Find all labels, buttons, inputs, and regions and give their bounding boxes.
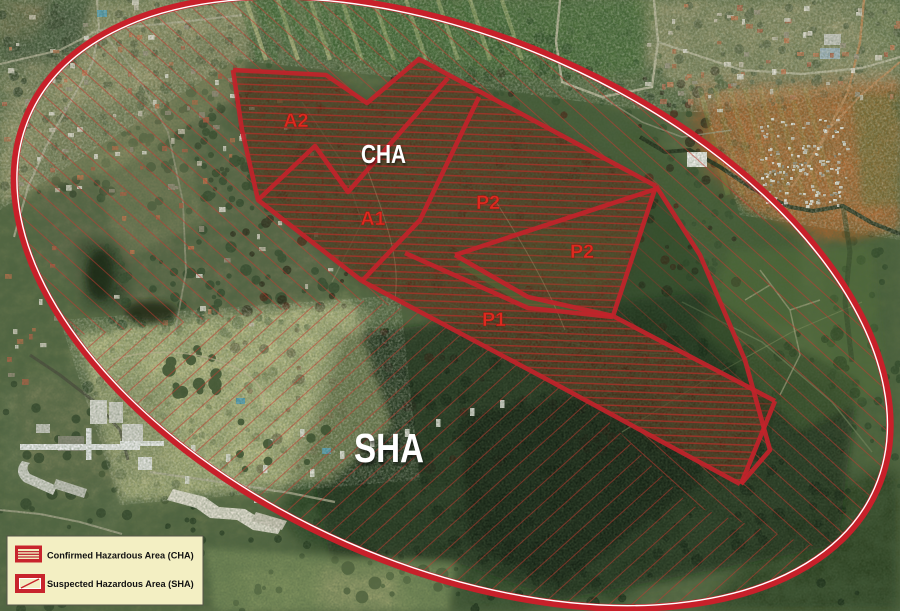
svg-text:CHA: CHA — [361, 139, 406, 169]
svg-text:A2: A2 — [284, 110, 309, 132]
svg-text:P2: P2 — [476, 192, 500, 214]
svg-text:SHA: SHA — [354, 425, 424, 471]
svg-text:Suspected Hazardous Area (SHA): Suspected Hazardous Area (SHA) — [47, 579, 194, 589]
svg-text:A1: A1 — [361, 208, 386, 230]
svg-text:Confirmed Hazardous Area (CHA): Confirmed Hazardous Area (CHA) — [47, 551, 194, 561]
svg-text:P2: P2 — [570, 241, 594, 263]
svg-text:P1: P1 — [482, 309, 506, 331]
